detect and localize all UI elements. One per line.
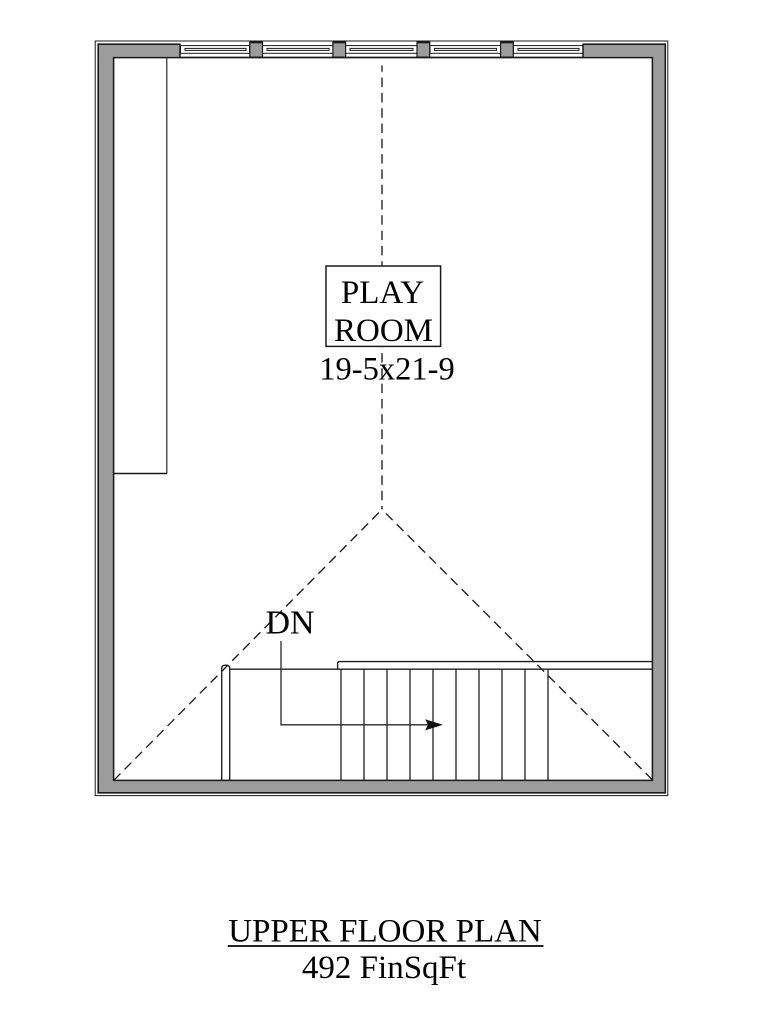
svg-text:DN: DN xyxy=(266,605,315,642)
svg-text:UPPER FLOOR PLAN: UPPER FLOOR PLAN xyxy=(228,914,542,950)
svg-text:19-5x21-9: 19-5x21-9 xyxy=(319,352,454,388)
svg-text:ROOM: ROOM xyxy=(334,313,433,349)
svg-text:PLAY: PLAY xyxy=(341,275,424,311)
svg-text:492 FinSqFt: 492 FinSqFt xyxy=(302,950,466,986)
